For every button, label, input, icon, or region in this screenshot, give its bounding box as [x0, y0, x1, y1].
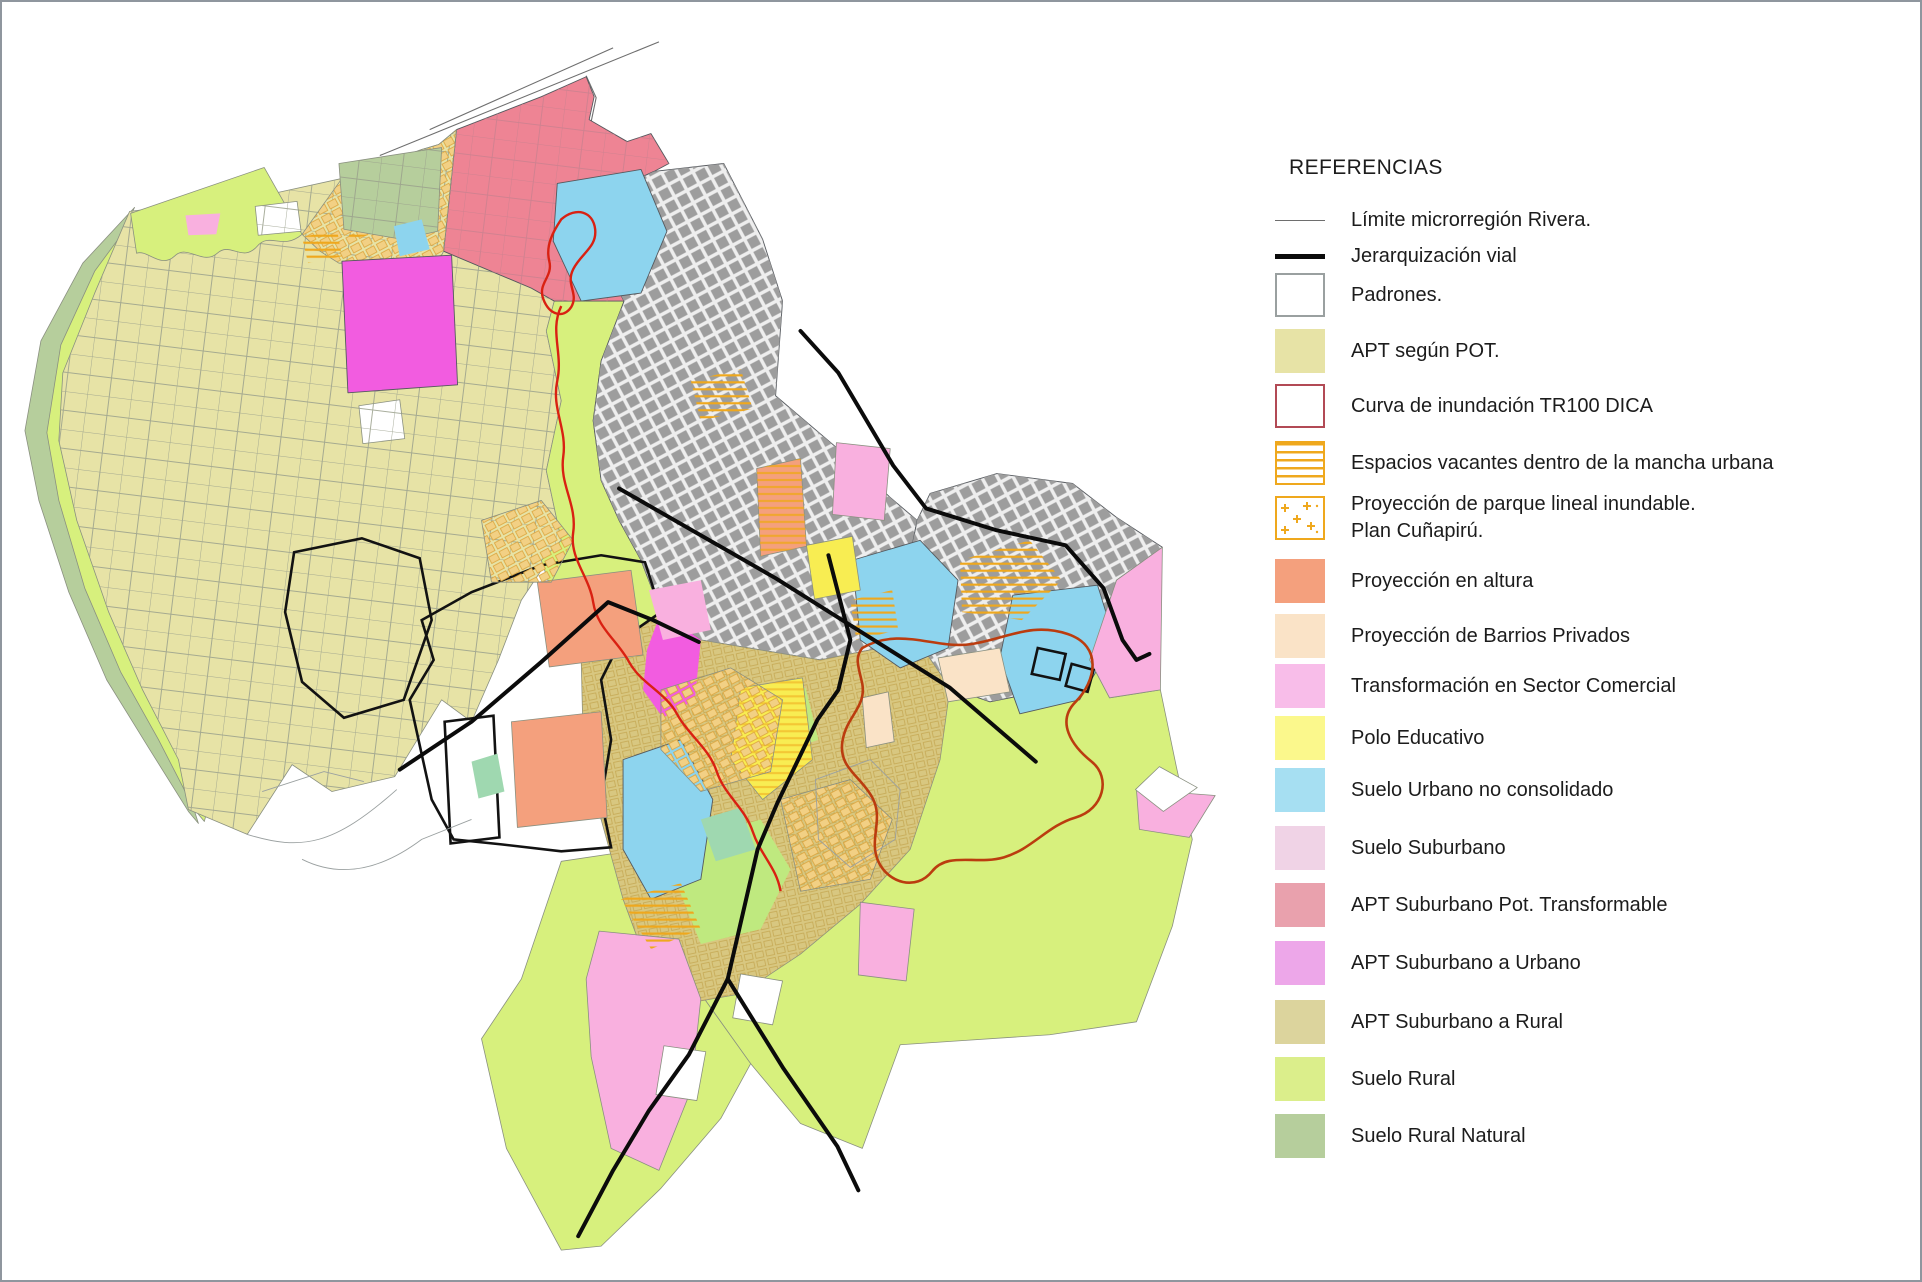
- padrones-swatch: [1275, 273, 1325, 317]
- legend-label: Suelo Rural Natural: [1351, 1123, 1526, 1150]
- espacios-vacantes-swatch: [1275, 441, 1325, 485]
- legend-item-curva: Curva de inundación TR100 DICA: [1275, 384, 1653, 428]
- legend-item-barrios-privados: Proyección de Barrios Privados: [1275, 614, 1630, 658]
- legend-item-parque-lineal: Proyección de parque lineal inundable. P…: [1275, 496, 1696, 540]
- apt-pot-transformable-swatch: [1275, 883, 1325, 927]
- legend-item-polo-educativo: Polo Educativo: [1275, 716, 1484, 760]
- legend-item-apt-a-urbano: APT Suburbano a Urbano: [1275, 941, 1581, 985]
- map-sheet: REFERENCIAS Límite microrregión Rivera. …: [0, 0, 1922, 1282]
- legend-label: Jerarquización vial: [1351, 243, 1517, 270]
- legend-label: Suelo Suburbano: [1351, 835, 1506, 862]
- suelo-urbano-swatch: [1275, 768, 1325, 812]
- legend-label: Suelo Urbano no consolidado: [1351, 777, 1613, 804]
- legend-label: Proyección de parque lineal inundable. P…: [1351, 491, 1696, 545]
- legend-label: Polo Educativo: [1351, 725, 1484, 752]
- legend-label: APT Suburbano a Rural: [1351, 1009, 1563, 1036]
- suelo-rural-swatch: [1275, 1057, 1325, 1101]
- apt-pot-swatch: [1275, 329, 1325, 373]
- legend-item-proyeccion-altura: Proyección en altura: [1275, 559, 1533, 603]
- legend-item-suelo-rural-natural: Suelo Rural Natural: [1275, 1114, 1526, 1158]
- proyeccion-altura-swatch: [1275, 559, 1325, 603]
- legend-label: Suelo Rural: [1351, 1066, 1456, 1093]
- suelo-rural-natural-swatch: [1275, 1114, 1325, 1158]
- legend-item-suelo-suburbano: Suelo Suburbano: [1275, 826, 1506, 870]
- parque-lineal-swatch: [1275, 496, 1325, 540]
- legend-label: Espacios vacantes dentro de la mancha ur…: [1351, 450, 1774, 477]
- limite-line-swatch: [1275, 220, 1325, 221]
- legend-item-espacios-vacantes: Espacios vacantes dentro de la mancha ur…: [1275, 441, 1774, 485]
- legend-item-apt-a-rural: APT Suburbano a Rural: [1275, 1000, 1563, 1044]
- legend-label: Padrones.: [1351, 282, 1442, 309]
- suelo-suburbano-swatch: [1275, 826, 1325, 870]
- legend-item-suelo-rural: Suelo Rural: [1275, 1057, 1456, 1101]
- legend-label: Curva de inundación TR100 DICA: [1351, 393, 1653, 420]
- region-apt-suburbano-a-urbano-nw: [342, 255, 458, 393]
- legend-item-jerarquizacion: Jerarquización vial: [1275, 234, 1517, 278]
- legend-label: Proyección de Barrios Privados: [1351, 623, 1630, 650]
- apt-a-urbano-swatch: [1275, 941, 1325, 985]
- legend-label: Proyección en altura: [1351, 568, 1533, 595]
- legend-label: APT Suburbano Pot. Transformable: [1351, 892, 1667, 919]
- curva-swatch: [1275, 384, 1325, 428]
- seafoam-patch-2: [472, 754, 505, 799]
- legend-item-apt-pot: APT según POT.: [1275, 329, 1500, 373]
- region-pink-top-patch: [185, 213, 220, 235]
- legend-item-transformacion-comercial: Transformación en Sector Comercial: [1275, 664, 1676, 708]
- legend-title: REFERENCIAS: [1289, 156, 1443, 180]
- legend-item-suelo-urbano: Suelo Urbano no consolidado: [1275, 768, 1613, 812]
- legend-label: APT según POT.: [1351, 338, 1500, 365]
- rural-natural-strip-parcels: [339, 148, 442, 240]
- apt-a-rural-swatch: [1275, 1000, 1325, 1044]
- legend-label: Transformación en Sector Comercial: [1351, 673, 1676, 700]
- map-canvas: [2, 2, 1920, 1280]
- sw-parcel-lines: [247, 772, 471, 870]
- transformacion-comercial-swatch: [1275, 664, 1325, 708]
- legend-label: Límite microrregión Rivera.: [1351, 207, 1591, 234]
- barrios-privados-swatch: [1275, 614, 1325, 658]
- vial-line-swatch: [1275, 254, 1325, 259]
- legend-label: APT Suburbano a Urbano: [1351, 950, 1581, 977]
- polo-educativo-swatch: [1275, 716, 1325, 760]
- legend-item-apt-pot-transformable: APT Suburbano Pot. Transformable: [1275, 883, 1667, 927]
- legend-item-padrones: Padrones.: [1275, 273, 1442, 317]
